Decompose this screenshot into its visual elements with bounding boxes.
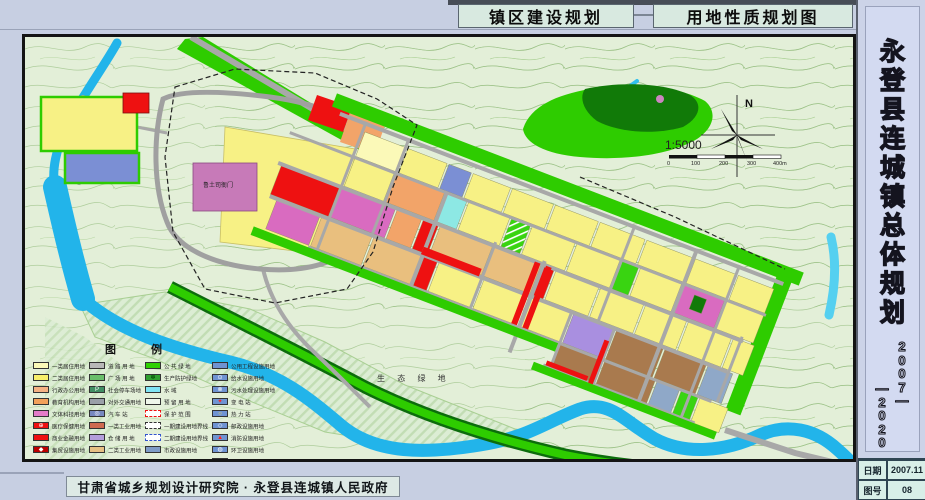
legend-swatch [89,434,105,441]
plan-year-char: 0 [898,367,905,381]
scale-label: 1:5000 [665,138,702,152]
scale-tick: 300 [747,161,756,167]
legend-item: ◍环卫设施用地 [212,444,275,455]
scale-tick: 0 [667,161,670,167]
plan-title-char: 总 [880,212,905,241]
legend-item: ○热 力 站 [212,408,275,419]
legend-item: 公用工程设施用地 [212,360,275,371]
legend-label: 水 域 [164,386,177,394]
title-connector [634,14,653,16]
legend-label: 公 共 绿 地 [164,362,191,370]
sheet-title-right: 用地性质规划图 [653,4,853,28]
legend-item: 一类工业用地 [89,420,141,431]
legend-swatch [145,446,161,453]
legend-label: 二类居住用地 [52,374,85,382]
legend-label: 一类工业用地 [108,422,141,430]
plan-title-char: 登 [880,67,905,96]
legend-columns: 一类居住用地二类居住用地行政办公用地教育机构用地文体科技用地⊕医疗保健用地商业金… [33,360,319,462]
legend-label: 环卫设施用地 [231,446,264,454]
legend-item: 商业金融用地 [33,432,85,443]
legend-item: ▲消防设施用地 [212,432,275,443]
legend-label: 热 力 站 [231,410,251,418]
legend-swatch: ⊙ [212,374,228,381]
plan-year-char: — [896,394,909,408]
legend-label: 保 护 范 围 [164,410,191,418]
legend-swatch [89,398,105,405]
legend-label: 一类居住用地 [52,362,85,370]
legend-swatch: ⊗ [212,386,228,393]
legend-item: 二类居住用地 [33,372,85,383]
legend-swatch: ◎ [89,410,105,417]
plan-title-vertical: 永登县连城镇总体规划 [858,38,925,328]
footer-band: 甘肃省城乡规划设计研究院 · 永登县连城镇人民政府 [0,462,856,500]
plan-title-char: 镇 [880,183,905,212]
plan-title-char: 划 [880,299,905,328]
legend-label: 教育机构用地 [52,398,85,406]
legend-label: 文体科技用地 [52,410,85,418]
legend-swatch [89,374,105,381]
legend-swatch: P [89,386,105,393]
legend-swatch: ◍ [212,446,228,453]
sheet-number-value: 08 [887,480,925,500]
legend-swatch [145,362,161,369]
plan-title-char: 城 [880,154,905,183]
legend-label: 行政办公用地 [52,386,85,394]
legend-item: 公 共 绿 地 [145,360,208,371]
plan-year-char: 2 [898,340,905,354]
legend-swatch: ✦ [212,398,228,405]
date-value: 2007.11 [887,460,925,480]
scale-tick: 200 [719,161,728,167]
legend-label: 社会停车场地 [108,386,141,394]
legend-item: 仓 储 用 地 [89,432,141,443]
legend-item: 市政设施用地 [145,444,208,455]
legend-label: 消防设施用地 [231,434,264,442]
legend-item: 二期建设用地界线 [145,432,208,443]
legend-item: 水 域 [145,384,208,395]
legend-column: 一类居住用地二类居住用地行政办公用地教育机构用地文体科技用地⊕医疗保健用地商业金… [33,360,85,462]
date-label: 日期 [858,460,887,480]
legend-item: ◎汽 车 站 [89,408,141,419]
plan-year-char: 0 [898,354,905,368]
legend-item: ◆集贸设施用地 [33,444,85,455]
legend-item: 一类居住用地 [33,360,85,371]
legend-swatch [89,362,105,369]
legend-label: 污水处理设施用地 [231,386,275,394]
scale-tick: 400m [773,161,787,167]
legend-item: ◇邮政设施用地 [212,420,275,431]
legend-swatch: ✽ [145,374,161,381]
legend-item: 二类工业用地 [89,444,141,455]
legend-label: 汽 车 站 [108,410,128,418]
legend-item: ✦变 电 站 [212,396,275,407]
legend-swatch: ⊕ [33,422,49,429]
legend-item: 一期建设用地界线 [145,420,208,431]
legend-label: 商业金融用地 [52,434,85,442]
plan-year-char: 0 [878,409,885,423]
legend-item: 行政办公用地 [33,384,85,395]
plan-year-char: 2 [878,423,885,437]
legend-item: P社会停车场地 [89,384,141,395]
plan-years-col1: 2007— [894,340,910,408]
legend-swatch [145,398,161,405]
sheet-title-left: 镇区建设规划 [458,4,634,28]
legend-swatch: ▲ [212,434,228,441]
legend-swatch [33,374,49,381]
legend-label: 给水设施用地 [231,374,264,382]
plan-title-char: 体 [880,241,905,270]
legend-swatch [33,434,49,441]
legend-swatch [145,410,161,417]
drawing-sheet: 镇区建设规划 用地性质规划图 [0,0,925,500]
legend-item: 预 留 用 地 [145,396,208,407]
plan-title-char: 连 [880,125,905,154]
credit-box: 甘肃省城乡规划设计研究院 · 永登县连城镇人民政府 [66,476,400,497]
legend-swatch [145,386,161,393]
legend-label: 对外交通用地 [108,398,141,406]
legend-swatch [33,410,49,417]
plan-year-char: 0 [878,436,885,450]
footer-rule [0,472,64,474]
legend-label: 仓 储 用 地 [108,434,135,442]
legend-swatch [89,422,105,429]
legend-label: 二类工业用地 [108,446,141,454]
legend-swatch [33,398,49,405]
map-legend: 图 例 一类居住用地二类居住用地行政办公用地教育机构用地文体科技用地⊕医疗保健用… [33,341,319,462]
legend-item: ⊗污水处理设施用地 [212,384,275,395]
sheet-number-label: 图号 [858,480,887,500]
legend-item: 教育机构用地 [33,396,85,407]
legend-label: 广 场 用 地 [108,374,135,382]
credit-text: 甘肃省城乡规划设计研究院 · 永登县连城镇人民政府 [77,477,388,496]
legend-label: 道 路 用 地 [108,362,135,370]
legend-item: ✽生产防护绿地 [145,372,208,383]
legend-item: 保 护 范 围 [145,408,208,419]
legend-item: ⊙给水设施用地 [212,372,275,383]
legend-swatch: ○ [212,410,228,417]
plan-title-char: 规 [880,270,905,299]
legend-label: 集贸设施用地 [52,446,85,454]
legend-column: 道 路 用 地广 场 用 地P社会停车场地对外交通用地◎汽 车 站一类工业用地仓… [89,360,141,462]
legend-label: 一期建设用地界线 [164,422,208,430]
legend-swatch [212,362,228,369]
legend-swatch [89,446,105,453]
legend-swatch [145,422,161,429]
plan-year-char: 2 [878,396,885,410]
eco-green-label: 生 态 绿 地 [377,373,451,383]
sheet-title-right-label: 用地性质规划图 [686,4,819,28]
legend-swatch [145,434,161,441]
legend-swatch [33,386,49,393]
legend-item: ⊕医疗保健用地 [33,420,85,431]
plan-years-col2: —2020 [874,382,890,450]
legend-label: 医疗保健用地 [52,422,85,430]
legend-label: 二期建设用地界线 [164,434,208,442]
plan-year-char: 7 [898,381,905,395]
date-row: 日期 2007.11 [858,460,925,480]
top-rule [0,29,856,30]
legend-item: 道 路 用 地 [89,360,141,371]
title-block-sidebar: 永登县连城镇总体规划 2007— —2020 日期 2007.11 图号 08 [856,0,925,500]
scale-tick: 100 [691,161,700,167]
legend-column: 公用工程设施用地⊙给水设施用地⊗污水处理设施用地✦变 电 站○热 力 站◇邮政设… [212,360,275,462]
legend-item: 广 场 用 地 [89,372,141,383]
legend-swatch [33,362,49,369]
legend-label: 公用工程设施用地 [231,362,275,370]
legend-item: 文体科技用地 [33,408,85,419]
legend-column: 公 共 绿 地✽生产防护绿地水 域预 留 用 地保 护 范 围一期建设用地界线二… [145,360,208,462]
north-label: N [745,98,753,110]
sheet-number-row: 图号 08 [858,480,925,500]
plan-year-char: — [876,382,889,396]
legend-label: 市政设施用地 [164,446,197,454]
legend-title: 图 例 [105,341,319,357]
heritage-label: 鲁土司衙门 [203,181,233,189]
legend-swatch: ◇ [212,422,228,429]
legend-label: 预 留 用 地 [164,398,191,406]
plan-title-char: 县 [880,96,905,125]
legend-label: 邮政设施用地 [231,422,264,430]
sheet-title-left-label: 镇区建设规划 [489,4,603,28]
legend-label: 变 电 站 [231,398,251,406]
title-block-table: 日期 2007.11 图号 08 [858,458,925,500]
legend-swatch: ◆ [33,446,49,453]
map-frame: 生 态 绿 地 [22,34,856,462]
plan-title-char: 永 [880,38,905,67]
legend-label: 生产防护绿地 [164,374,197,382]
legend-item: 对外交通用地 [89,396,141,407]
